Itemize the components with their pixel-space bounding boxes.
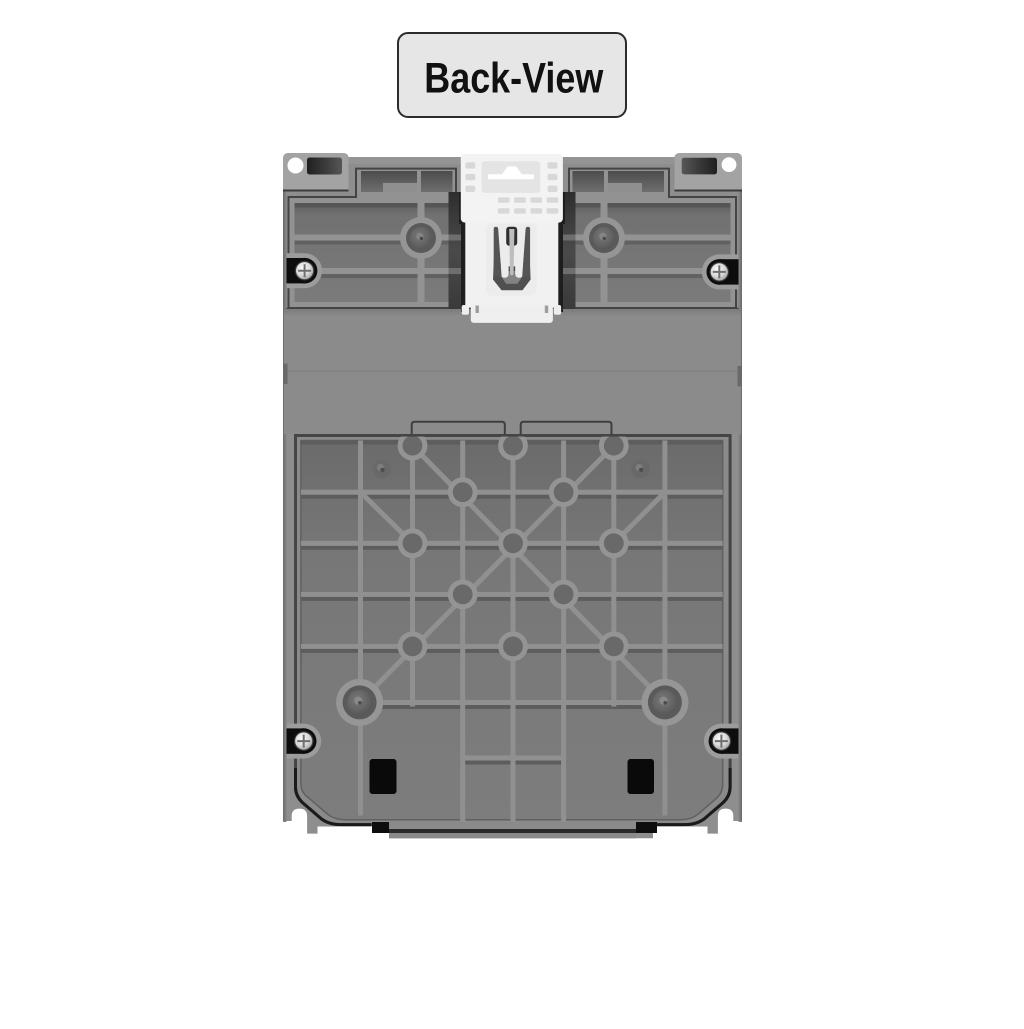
svg-text:Back-View: Back-View (424, 54, 603, 102)
